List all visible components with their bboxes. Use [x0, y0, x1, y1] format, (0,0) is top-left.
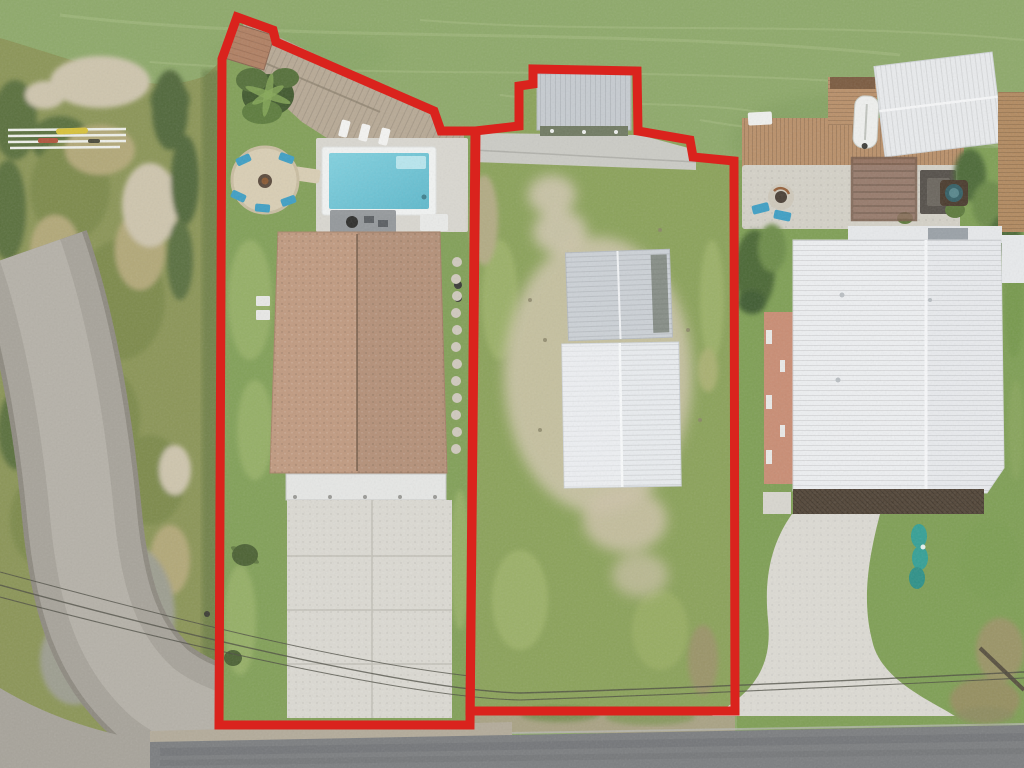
- aerial-photo-svg: [0, 0, 1024, 768]
- aerial-photo: [0, 0, 1024, 768]
- photo-grain: [0, 0, 1024, 768]
